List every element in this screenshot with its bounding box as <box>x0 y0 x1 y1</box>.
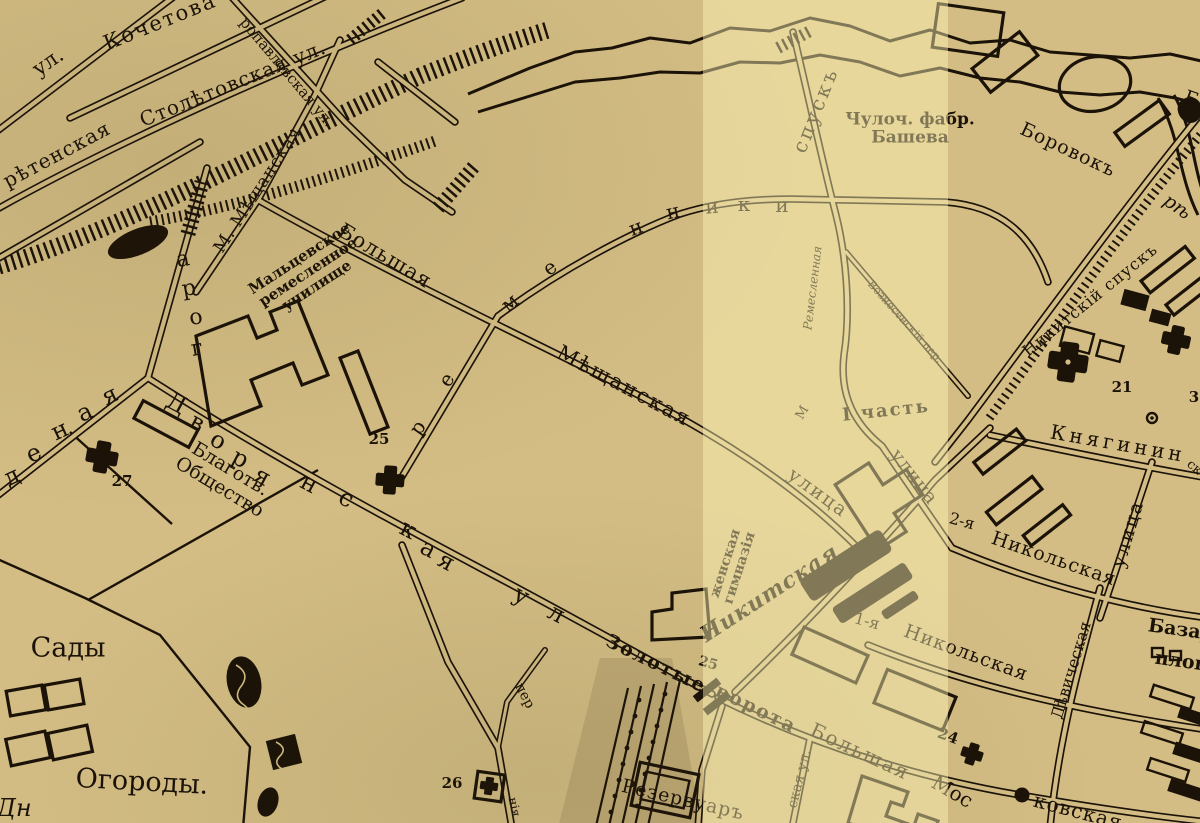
label-remenniki-3: м <box>497 290 523 317</box>
label-dvor-2: в <box>185 408 209 437</box>
label-niya-edge: нія <box>506 796 523 818</box>
label-sretenskaya: рѣтенская <box>0 118 114 193</box>
label-studenaya-ya: я <box>98 381 123 411</box>
label-borovok: Боровокъ <box>1017 119 1119 181</box>
label-dvor-1: Д <box>161 388 190 420</box>
label-nikolskaya1: Никольская <box>901 621 1031 685</box>
label-dn-edge: Дн <box>0 796 32 822</box>
label-per-lane: пер <box>511 681 537 712</box>
label-m-meshchanskaya: М. Мѣщанская <box>211 124 306 257</box>
label-dvor-8: к <box>395 515 420 545</box>
label-studenaya-n: н <box>47 416 72 446</box>
label-reka: рѣ <box>1159 190 1194 223</box>
label-nikolskaya2-prefix: 2-я <box>947 509 976 532</box>
label-dvor-10: я <box>433 547 459 577</box>
label-blagotv-obshchestvo: Благотв. Общество <box>172 435 278 521</box>
label-remeslennaya: Ремесленная <box>801 245 824 331</box>
label-remenniki-8: к <box>738 194 751 216</box>
label-studenaya-a: а <box>73 398 97 428</box>
label-studenaya-e: е <box>22 439 46 468</box>
label-num-3: 3 <box>1189 389 1199 405</box>
label-gora-o: о <box>187 305 204 331</box>
label-m-stray: М <box>794 404 813 423</box>
label-remenniki-9: и <box>775 195 788 217</box>
label-num-25-gate: 25 <box>697 654 720 674</box>
label-voznesensky-per: Вознесенскій пер. <box>865 279 945 366</box>
label-dvor-11: у <box>509 581 534 611</box>
label-num-26: 26 <box>442 775 463 791</box>
label-remenniki-6: н <box>664 200 682 224</box>
label-num-25-dvoryanskaya: 25 <box>369 431 390 447</box>
label-dvor-9: а <box>416 534 441 564</box>
label-meshchanskaya: Мѣщанская <box>553 341 695 431</box>
historical-city-map: ул.Кочетоваропавловская ул.Столѣтовская … <box>0 0 1200 823</box>
label-num-21: 21 <box>1112 379 1133 395</box>
label-bazar-line1: Базар <box>1147 615 1200 645</box>
label-kovskaya: ковская <box>1031 790 1125 823</box>
label-dvor-6: н <box>296 469 322 499</box>
label-num-27: 27 <box>112 473 133 489</box>
label-remenniki-4: е <box>539 256 561 280</box>
label-spusk: спускъ <box>789 64 843 156</box>
label-remenniki-5: н <box>626 216 646 241</box>
label-bazar-line2: площ <box>1154 648 1200 677</box>
label-gora-a: а <box>174 247 191 273</box>
label-nikolskaya1-prefix: 1-я <box>852 609 881 632</box>
label-remenniki-7: и <box>704 196 719 219</box>
label-dvor-12: л <box>543 599 569 629</box>
label-knyaginin: Княгинин <box>1049 421 1188 466</box>
label-rezervuar: Резервуаръ <box>620 776 747 823</box>
label-num-24: 24 <box>935 725 960 747</box>
label-nikitsky-spusk: Никитскій спускъ <box>1019 240 1161 359</box>
label-dvor-7: с <box>334 484 358 513</box>
label-ulitsa-right: улица <box>1108 498 1148 570</box>
label-studenaya-d: д <box>0 462 24 492</box>
label-nikolskaya2: Никольская <box>989 528 1119 590</box>
label-devicheskaya: Дѣвическая <box>1048 619 1094 721</box>
label-sady: Сады <box>31 633 106 662</box>
label-skaya-ul: ская ул. <box>785 748 814 810</box>
label-ulitsa-2: улица <box>886 445 942 508</box>
label-bolshaya-mos-2: Мос <box>928 772 977 813</box>
label-b-edge: Б <box>1181 87 1200 111</box>
label-kochetova: Кочетова <box>100 0 220 55</box>
label-ulitsa-1: улица <box>784 464 852 521</box>
label-vorota: ворота <box>712 681 800 738</box>
labels-layer: ул.Кочетоваропавловская ул.Столѣтовская … <box>0 0 1200 823</box>
label-chast-1: I часть <box>841 397 930 426</box>
label-gora-r: р <box>180 276 198 302</box>
label-remenniki-1: р <box>405 417 430 440</box>
label-sk-cont: ск <box>1184 458 1200 479</box>
label-chuloch-fabrika-basheva: Чулоч. фабр. Башева <box>845 111 975 148</box>
label-bolshaya-mos-1: Большая <box>807 720 914 785</box>
label-zolotye: Золотые <box>602 631 709 697</box>
label-remenniki-2: е <box>435 369 459 391</box>
label-ul-top-left: ул. <box>28 43 68 80</box>
label-gora-g: г <box>189 336 204 361</box>
label-ogorody: Огороды. <box>75 764 209 800</box>
